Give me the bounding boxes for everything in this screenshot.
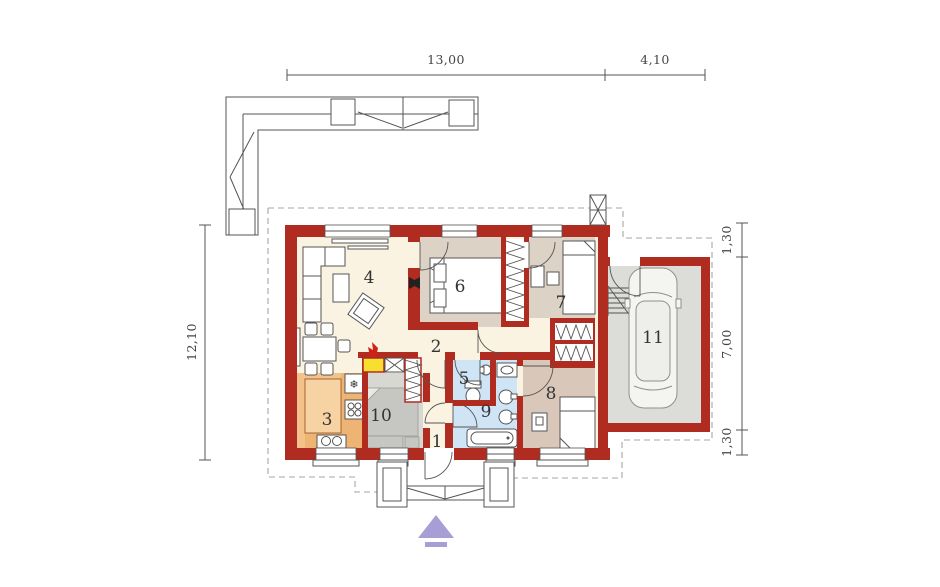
porch-column bbox=[377, 462, 407, 507]
room-label-10: 10 bbox=[370, 406, 392, 426]
nightstand bbox=[532, 413, 547, 431]
wall-shelf bbox=[348, 246, 388, 249]
pillow bbox=[434, 264, 446, 282]
dimension-right: 1,30 7,00 1,30 bbox=[719, 223, 748, 457]
room-label-7: 7 bbox=[556, 293, 567, 313]
dim-label-garage-depth: 7,00 bbox=[719, 329, 734, 358]
dining-table bbox=[303, 337, 336, 361]
entrance-arrow-icon bbox=[418, 515, 454, 547]
chair bbox=[338, 340, 350, 352]
bed bbox=[560, 397, 595, 449]
dimension-top: 13,00 4,10 bbox=[287, 52, 705, 81]
armchair bbox=[333, 274, 349, 302]
utility-unit bbox=[366, 436, 403, 448]
dim-label-house-width: 13,00 bbox=[427, 52, 465, 67]
floor-plan-page: 13,00 4,10 12,10 1,30 7,00 1,30 bbox=[0, 0, 940, 587]
stove bbox=[345, 400, 363, 419]
bed bbox=[563, 241, 595, 314]
washing-machine bbox=[497, 363, 517, 377]
garage-door-opening bbox=[610, 257, 640, 266]
dimension-left: 12,10 bbox=[184, 225, 211, 460]
entrance-porch bbox=[377, 462, 514, 507]
chair bbox=[321, 323, 333, 335]
room-label-2: 2 bbox=[431, 337, 442, 357]
porch-column bbox=[484, 462, 514, 507]
room-label-5: 5 bbox=[459, 369, 470, 389]
fridge-icon: ❄ bbox=[349, 378, 358, 391]
pergola-post bbox=[331, 99, 355, 125]
dim-label-right-bottom: 1,30 bbox=[719, 427, 734, 456]
window-sill bbox=[313, 460, 359, 466]
floor-plan-drawing: 13,00 4,10 12,10 1,30 7,00 1,30 bbox=[0, 0, 940, 587]
terrace-pergola bbox=[226, 97, 478, 235]
car-mirror bbox=[676, 299, 681, 308]
pergola-post bbox=[229, 209, 255, 235]
room-label-1: 1 bbox=[432, 432, 443, 452]
chair bbox=[321, 363, 333, 375]
dim-label-house-depth: 12,10 bbox=[184, 323, 199, 361]
utility-unit bbox=[405, 437, 419, 448]
car-mirror bbox=[625, 299, 630, 308]
window-sill bbox=[537, 460, 588, 466]
room-label-9: 9 bbox=[481, 402, 492, 422]
room-label-4: 4 bbox=[364, 268, 375, 288]
dim-label-right-top: 1,30 bbox=[719, 225, 734, 254]
room-label-6: 6 bbox=[455, 277, 466, 297]
pergola-post bbox=[449, 100, 474, 126]
desk bbox=[531, 266, 544, 287]
chair bbox=[305, 323, 317, 335]
room-label-8: 8 bbox=[546, 384, 557, 404]
chimney bbox=[590, 195, 606, 225]
fireplace bbox=[363, 358, 384, 372]
room-label-3: 3 bbox=[322, 410, 333, 430]
pillow bbox=[434, 289, 446, 307]
dim-label-garage-width: 4,10 bbox=[640, 52, 669, 67]
chair bbox=[547, 272, 559, 285]
wall-shelf bbox=[332, 239, 388, 243]
chair bbox=[305, 363, 317, 375]
room-label-11: 11 bbox=[642, 328, 664, 348]
